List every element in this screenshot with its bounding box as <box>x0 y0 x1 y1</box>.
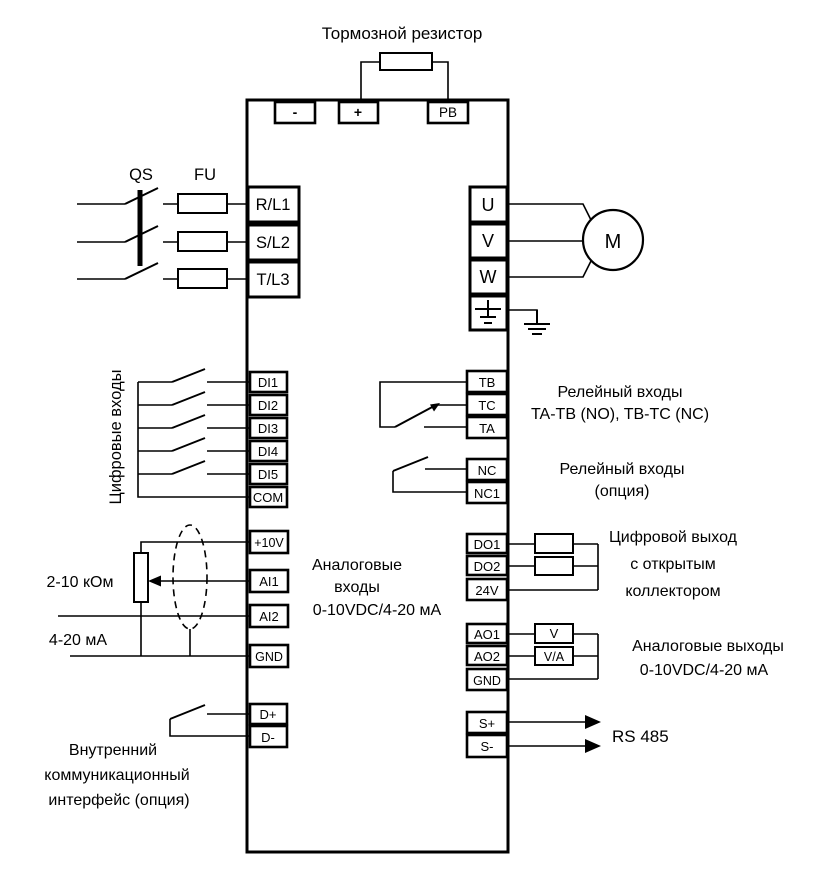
relay1-caption-line1: Релейный входы <box>558 384 683 401</box>
fuse-label: FU <box>194 166 216 184</box>
terminal-s-minus-label: S- <box>481 739 494 754</box>
comm-caption-line3: интерфейс (опция) <box>48 792 189 809</box>
comm-wires <box>170 714 250 736</box>
rs485-arrow-plus <box>585 715 601 729</box>
comm-switch-blade <box>170 705 205 719</box>
motor-wires <box>508 204 591 277</box>
disconnect-switch-label: QS <box>129 166 153 184</box>
analog-outputs-section: V V/A AO1 AO2 GND Аналоговые выходы 0-10… <box>467 624 784 690</box>
motor-output-section: M U V W <box>470 187 643 334</box>
terminal-com-label: COM <box>253 490 283 505</box>
comm-caption-line2: коммуникационный <box>44 767 189 784</box>
terminal-pb-label: PB <box>439 105 457 120</box>
do1-load-symbol <box>535 534 573 553</box>
relay1-caption-line2: TA-TB (NO), TB-TC (NC) <box>531 406 709 423</box>
terminal-do2-label: DO2 <box>474 559 501 574</box>
terminal-di1-label: DI1 <box>258 375 278 390</box>
analog-inputs-caption-line2: входы <box>334 579 380 596</box>
terminal-ta-label: TA <box>479 421 495 436</box>
wiring-diagram-page: Тормозной резистор - + PB QS FU R/L1 S/L… <box>0 0 814 873</box>
ai1-wiper-arrow <box>148 576 161 587</box>
terminal-u-label: U <box>482 195 495 215</box>
analog-outputs-caption-line1: Аналоговые выходы <box>632 638 784 655</box>
digital-outputs-caption-line2: с открытым <box>630 556 716 573</box>
terminal-gnd-out-label: GND <box>473 674 501 688</box>
fuse-symbol-3 <box>178 269 227 288</box>
terminal-ao1-label: AO1 <box>474 627 500 642</box>
rs485-arrow-minus <box>585 739 601 753</box>
do2-load-symbol <box>535 557 573 575</box>
terminal-24v-label: 24V <box>475 583 498 598</box>
fuse-symbol-1 <box>178 194 227 213</box>
terminal-v-label: V <box>482 231 494 251</box>
terminal-di3-label: DI3 <box>258 421 278 436</box>
digital-input-switch-blades <box>172 369 205 474</box>
potentiometer-symbol <box>134 553 148 602</box>
pot-value-label: 2-10 кОм <box>47 574 114 591</box>
relay2-caption-line1: Релейный входы <box>560 461 685 478</box>
terminal-nc-label: NC <box>478 463 497 478</box>
rs485-section: S+ S- RS 485 <box>467 712 669 757</box>
terminal-t-l3-label: T/L3 <box>256 271 289 289</box>
terminal-gnd-in-label: GND <box>255 650 283 664</box>
comm-caption-line1: Внутренний <box>69 742 157 759</box>
voltmeter-label: V <box>550 626 559 641</box>
brake-resistor-label: Тормозной резистор <box>322 24 483 43</box>
brake-resistor-section: Тормозной резистор - + PB <box>275 24 482 123</box>
terminal-tc-label: TC <box>478 398 495 413</box>
terminal-s-plus-label: S+ <box>479 716 495 731</box>
terminal-ao2-label: AO2 <box>474 649 500 664</box>
terminal-s-l2-label: S/L2 <box>256 234 290 252</box>
terminal-do1-label: DO1 <box>474 537 501 552</box>
terminal-10v-label: +10V <box>254 536 284 550</box>
terminal-ai2-label: AI2 <box>259 609 279 624</box>
terminal-minus-label: - <box>293 104 298 120</box>
terminal-d-minus-label: D- <box>261 730 275 745</box>
digital-outputs-section: DO1 DO2 24V Цифровой выход с открытым ко… <box>467 529 738 600</box>
power-input-section: QS FU R/L1 S/L2 T/L3 <box>77 166 299 297</box>
rs485-caption: RS 485 <box>612 727 669 746</box>
digital-input-wires <box>138 382 250 497</box>
terminal-tb-label: TB <box>479 375 496 390</box>
earth-wire <box>507 310 537 324</box>
terminal-di5-label: DI5 <box>258 467 278 482</box>
current-input-label: 4-20 мА <box>49 632 107 649</box>
terminal-di4-label: DI4 <box>258 444 278 459</box>
digital-outputs-caption-line3: коллектором <box>625 583 720 600</box>
motor-label: M <box>605 231 622 253</box>
terminal-w-label: W <box>480 267 497 287</box>
terminal-plus-label: + <box>354 104 362 120</box>
terminal-di2-label: DI2 <box>258 398 278 413</box>
analog-inputs-caption-line3: 0-10VDC/4-20 мА <box>313 602 442 619</box>
analog-outputs-caption-line2: 0-10VDC/4-20 мА <box>640 662 769 679</box>
external-earth-icon <box>524 310 550 334</box>
fuse-symbol-2 <box>178 232 227 251</box>
shielded-cable-ellipse <box>173 525 207 629</box>
relay2-caption-line2: (опция) <box>595 483 650 500</box>
terminal-r-l1-label: R/L1 <box>256 196 291 214</box>
wiring-diagram: Тормозной резистор - + PB QS FU R/L1 S/L… <box>0 0 814 873</box>
terminal-ai1-label: AI1 <box>259 574 279 589</box>
digital-inputs-group-label: Цифровые входы <box>107 370 125 505</box>
terminal-nc1-label: NC1 <box>474 486 500 501</box>
brake-resistor-symbol <box>380 53 432 70</box>
digital-inputs-section: Цифровые входы DI1 DI2 DI3 DI4 DI5 COM <box>107 369 287 507</box>
volt-ammeter-label: V/A <box>544 650 565 664</box>
analog-inputs-caption-line1: Аналоговые <box>312 557 402 574</box>
digital-outputs-caption-line1: Цифровой выход <box>609 529 738 546</box>
terminal-d-plus-label: D+ <box>260 707 277 722</box>
